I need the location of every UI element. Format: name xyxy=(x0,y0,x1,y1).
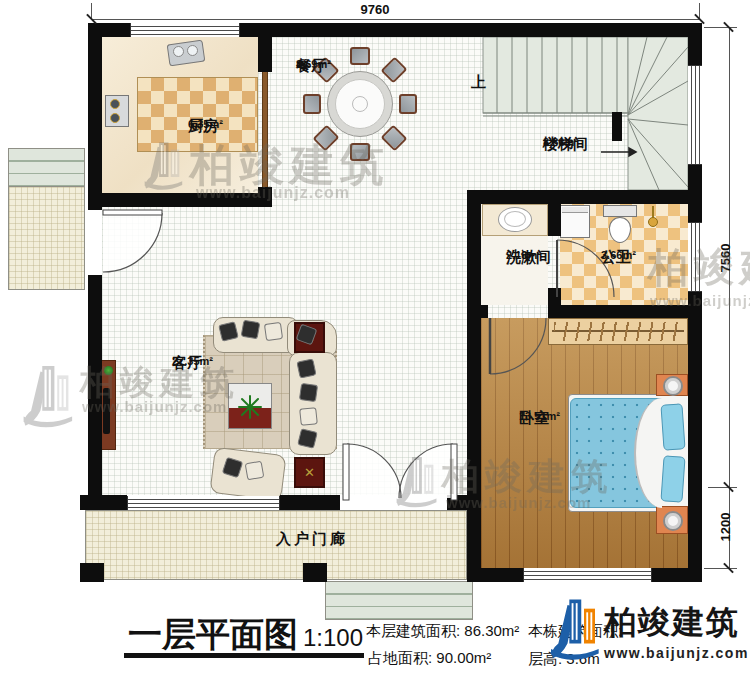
plan-scale: 1:100 xyxy=(303,624,363,652)
dining-chair xyxy=(350,47,370,65)
wall-south-living-2 xyxy=(280,495,340,510)
wall-bedroom-left xyxy=(467,305,481,582)
stair-wall-stub xyxy=(612,112,622,141)
room-area: 3.66m² xyxy=(601,249,636,262)
wall-left-upper xyxy=(88,23,102,210)
kitchen-sink-basin-left xyxy=(173,46,184,57)
wall-bedroom-bottom-left xyxy=(467,568,523,582)
title-underline xyxy=(124,653,364,658)
stairwell-window xyxy=(688,65,702,165)
dining-chair xyxy=(350,143,370,161)
wall-bedroom-bottom-right xyxy=(652,568,702,582)
sofa-pillow xyxy=(296,358,316,378)
sofa-pillow xyxy=(299,383,318,402)
dim-ext-right-1 xyxy=(704,27,737,28)
bathroom-window xyxy=(688,222,702,292)
entry-steps xyxy=(325,581,473,620)
porch-post-left xyxy=(80,563,104,582)
tv-plant xyxy=(104,366,113,375)
room-area: 8.69m² xyxy=(296,58,331,71)
brand-logo-icon xyxy=(544,594,602,660)
living-south-window xyxy=(127,496,280,510)
bed-pillow xyxy=(660,403,685,450)
dim-ext-right-3 xyxy=(704,568,737,569)
dim-right-upper-value: 7560 xyxy=(718,228,732,288)
dim-ext-right-2 xyxy=(708,487,737,488)
bed-pillow xyxy=(660,455,685,502)
brand-logo-name: 柏竣建筑 xyxy=(604,601,740,645)
room-area: 2.18m² xyxy=(506,249,541,262)
kitchen-sink-basin-right xyxy=(187,45,198,56)
side-porch-floor xyxy=(8,186,85,290)
wall-wash-bath-top xyxy=(548,204,561,236)
porch-post-mid xyxy=(303,563,327,582)
washing-machine-panel xyxy=(562,207,588,213)
side-entry-door xyxy=(88,200,178,290)
sofa-pillow xyxy=(241,320,261,340)
floor-area-text: 本层建筑面积: 86.30m² xyxy=(366,622,519,641)
washroom-basin-inner xyxy=(504,211,526,227)
wall-stair-divider xyxy=(467,190,702,204)
dining-chair xyxy=(399,94,417,114)
wall-kitchen-right-upper xyxy=(258,23,272,72)
bedroom-window xyxy=(523,568,652,582)
nightstand xyxy=(656,374,688,396)
room-area: 6.35m² xyxy=(188,118,223,131)
toilet-tank xyxy=(603,205,637,217)
brand-watermark-icon xyxy=(18,352,74,436)
tv xyxy=(103,388,110,434)
wall-left-lower xyxy=(88,275,102,495)
stove-burner-bottom xyxy=(110,113,120,123)
dim-right-lower-value: 1200 xyxy=(718,497,732,557)
staircase xyxy=(481,37,688,190)
dining-chair xyxy=(303,94,321,114)
shower-head xyxy=(648,217,658,227)
sofa-pillow xyxy=(245,461,265,481)
sofa-pillow xyxy=(264,322,283,341)
kitchen-window xyxy=(130,23,240,37)
room-area: 27.35m² xyxy=(172,355,213,368)
brand-logo-site: www.baijunjz.com xyxy=(604,645,749,661)
room-area: 13.51m² xyxy=(519,410,560,423)
floor-plan-canvas: ✕ ✕ xyxy=(0,0,750,675)
coffee-table-plant xyxy=(237,394,263,420)
side-porch-steps xyxy=(8,148,85,187)
wall-washroom-left xyxy=(467,190,481,318)
dim-line-top xyxy=(91,19,699,20)
wall-bedroom-top-right xyxy=(548,305,702,318)
kitchen-open-door xyxy=(262,70,268,188)
dim-top-value: 9760 xyxy=(340,2,410,17)
nightstand xyxy=(656,506,688,534)
dining-table-center xyxy=(352,96,368,112)
stove-burner-top xyxy=(110,99,120,109)
bedroom-door xyxy=(484,316,554,380)
room-area: 8.86m² xyxy=(543,136,578,149)
plan-title: 一层平面图 xyxy=(128,612,298,658)
entry-double-door xyxy=(338,438,462,502)
bathroom-door xyxy=(550,236,620,302)
porch-post-upper-left xyxy=(80,495,103,510)
site-area-text: 占地面积: 90.00m² xyxy=(368,649,491,668)
kitchen-counter xyxy=(137,77,258,152)
room-name: 入户门廊 xyxy=(276,531,348,546)
sofa-pillow xyxy=(299,407,318,426)
wardrobe-hangers xyxy=(554,322,682,341)
side-table: ✕ xyxy=(294,457,325,488)
